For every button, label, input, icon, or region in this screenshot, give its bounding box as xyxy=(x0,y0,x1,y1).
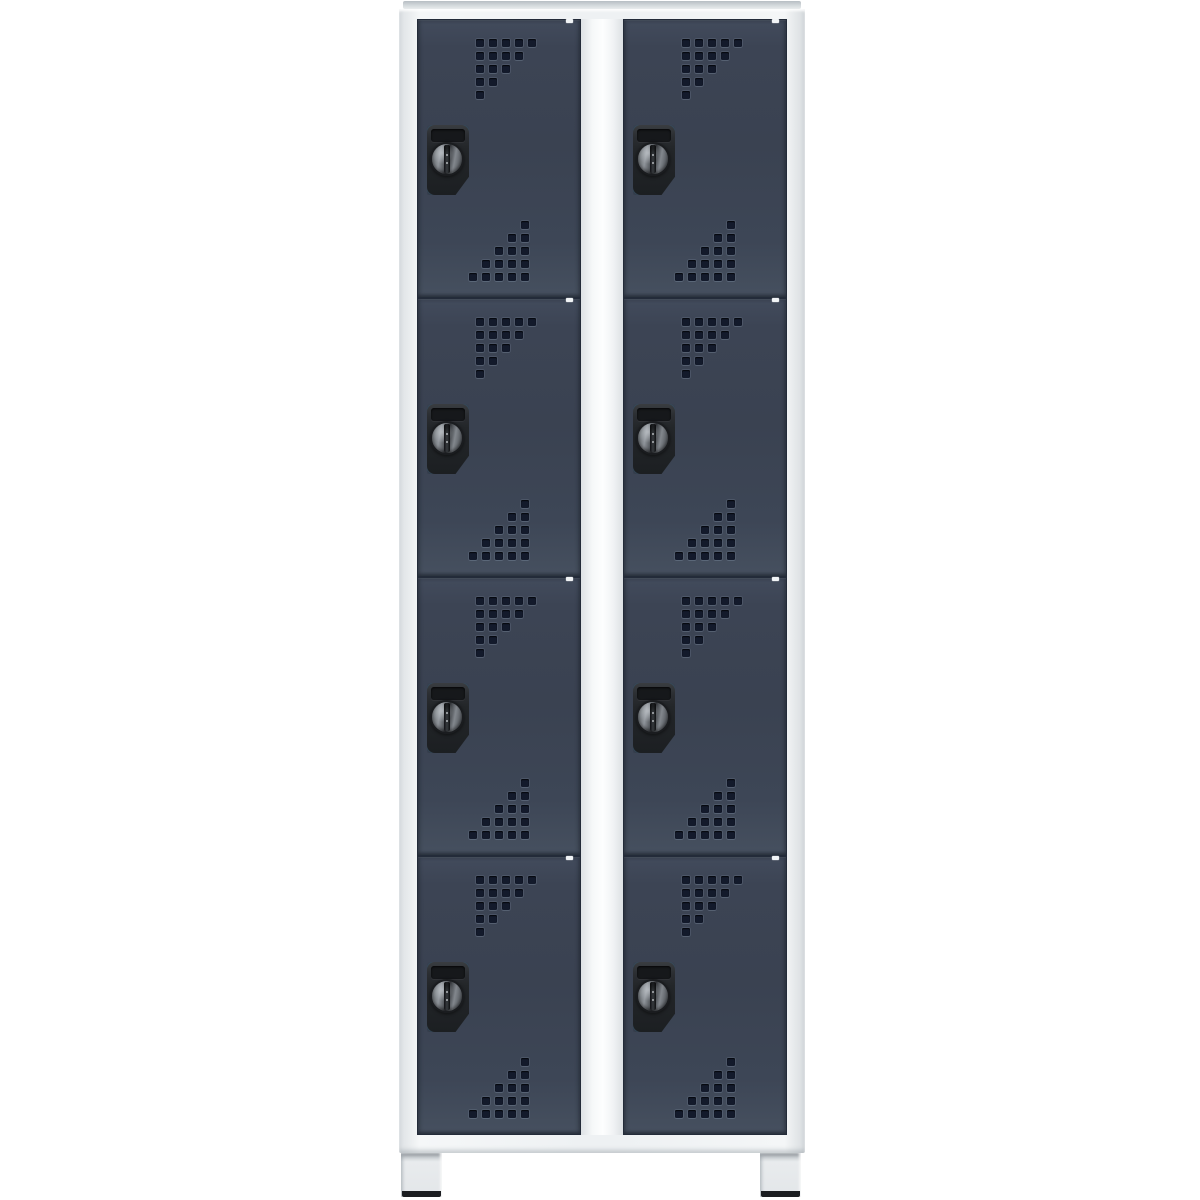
perforation-hole xyxy=(508,234,516,242)
perforation-hole xyxy=(708,39,716,47)
perforation-hole xyxy=(489,902,497,910)
perforation-hole xyxy=(688,1110,696,1118)
perforation-hole xyxy=(688,539,696,547)
ventilation-perforation-bottom xyxy=(675,221,735,281)
perforation-hole xyxy=(502,52,510,60)
perforation-hole xyxy=(502,65,510,73)
perforation-hole xyxy=(482,818,490,826)
perforation-hole xyxy=(695,52,703,60)
perforation-hole xyxy=(682,331,690,339)
perforation-hole xyxy=(508,831,516,839)
ventilation-perforation-top xyxy=(476,39,536,99)
locker-door-c2-r4 xyxy=(623,856,787,1135)
perforation-hole xyxy=(476,52,484,60)
perforation-hole xyxy=(708,597,716,605)
door-catch-highlight xyxy=(772,19,779,23)
perforation-hole xyxy=(502,318,510,326)
lock-recess xyxy=(637,966,671,979)
perforation-hole xyxy=(682,65,690,73)
cabinet-top-edge xyxy=(403,1,801,9)
perforation-hole xyxy=(476,623,484,631)
perforation-hole xyxy=(727,1058,735,1066)
perforation-hole xyxy=(714,260,722,268)
ventilation-perforation-bottom xyxy=(469,1058,529,1118)
perforation-hole xyxy=(521,1110,529,1118)
perforation-hole xyxy=(489,78,497,86)
perforation-hole xyxy=(695,357,703,365)
cabinet-foot-right xyxy=(760,1153,801,1197)
perforation-hole xyxy=(508,552,516,560)
perforation-hole xyxy=(708,610,716,618)
perforation-hole xyxy=(682,889,690,897)
knob-slot xyxy=(444,703,450,731)
perforation-hole xyxy=(489,357,497,365)
locker-lock xyxy=(633,962,675,1032)
perforation-hole xyxy=(682,915,690,923)
perforation-hole xyxy=(682,39,690,47)
perforation-hole xyxy=(476,649,484,657)
locker-door-c2-r3 xyxy=(623,577,787,856)
perforation-hole xyxy=(495,273,503,281)
perforation-hole xyxy=(708,344,716,352)
perforation-hole xyxy=(695,318,703,326)
ventilation-perforation-top xyxy=(682,876,742,936)
perforation-hole xyxy=(688,818,696,826)
perforation-hole xyxy=(495,526,503,534)
perforation-hole xyxy=(727,805,735,813)
perforation-hole xyxy=(682,344,690,352)
perforation-hole xyxy=(714,1110,722,1118)
perforation-hole xyxy=(502,597,510,605)
perforation-hole xyxy=(502,876,510,884)
locker-lock xyxy=(427,125,469,195)
perforation-hole xyxy=(695,623,703,631)
perforation-hole xyxy=(727,831,735,839)
perforation-hole xyxy=(714,539,722,547)
lock-recess xyxy=(637,687,671,700)
perforation-hole xyxy=(489,65,497,73)
perforation-hole xyxy=(682,318,690,326)
perforation-hole xyxy=(708,889,716,897)
perforation-hole xyxy=(528,876,536,884)
perforation-hole xyxy=(495,260,503,268)
perforation-hole xyxy=(682,597,690,605)
perforation-hole xyxy=(714,792,722,800)
perforation-hole xyxy=(521,539,529,547)
perforation-hole xyxy=(476,928,484,936)
locker-lock xyxy=(633,125,675,195)
perforation-hole xyxy=(714,513,722,521)
perforation-hole xyxy=(727,513,735,521)
perforation-hole xyxy=(727,221,735,229)
door-catch-highlight xyxy=(772,298,779,302)
perforation-hole xyxy=(476,39,484,47)
perforation-hole xyxy=(469,831,477,839)
perforation-hole xyxy=(714,526,722,534)
perforation-hole xyxy=(727,818,735,826)
perforation-hole xyxy=(476,78,484,86)
perforation-hole xyxy=(675,831,683,839)
center-mullion xyxy=(581,19,623,1135)
perforation-hole xyxy=(721,318,729,326)
perforation-hole xyxy=(714,1071,722,1079)
perforation-hole xyxy=(695,610,703,618)
perforation-hole xyxy=(714,818,722,826)
locker-lock xyxy=(633,683,675,753)
perforation-hole xyxy=(495,805,503,813)
locker-lock xyxy=(427,404,469,474)
perforation-hole xyxy=(489,610,497,618)
door-catch-highlight xyxy=(772,856,779,860)
ventilation-perforation-bottom xyxy=(675,779,735,839)
perforation-hole xyxy=(727,247,735,255)
perforation-hole xyxy=(695,344,703,352)
perforation-hole xyxy=(515,52,523,60)
perforation-hole xyxy=(521,500,529,508)
perforation-hole xyxy=(489,597,497,605)
perforation-hole xyxy=(721,889,729,897)
perforation-hole xyxy=(701,539,709,547)
lock-knob xyxy=(430,142,464,176)
perforation-hole xyxy=(721,876,729,884)
knob-slot xyxy=(650,703,656,731)
perforation-hole xyxy=(476,370,484,378)
perforation-hole xyxy=(727,1071,735,1079)
perforation-hole xyxy=(521,818,529,826)
lock-knob xyxy=(430,421,464,455)
perforation-hole xyxy=(521,221,529,229)
perforation-hole xyxy=(521,234,529,242)
knob-slot xyxy=(650,424,656,452)
perforation-hole xyxy=(727,234,735,242)
locker-cabinet xyxy=(399,0,805,1200)
ventilation-perforation-bottom xyxy=(469,779,529,839)
perforation-hole xyxy=(695,902,703,910)
perforation-hole xyxy=(521,792,529,800)
perforation-hole xyxy=(721,331,729,339)
perforation-hole xyxy=(682,78,690,86)
knob-slot xyxy=(650,145,656,173)
ventilation-perforation-bottom xyxy=(469,500,529,560)
perforation-hole xyxy=(502,623,510,631)
perforation-hole xyxy=(727,1097,735,1105)
perforation-hole xyxy=(701,1110,709,1118)
perforation-hole xyxy=(721,610,729,618)
locker-lock xyxy=(633,404,675,474)
perforation-hole xyxy=(734,597,742,605)
perforation-hole xyxy=(727,273,735,281)
perforation-hole xyxy=(495,1084,503,1092)
perforation-hole xyxy=(482,1097,490,1105)
perforation-hole xyxy=(476,318,484,326)
door-grid xyxy=(417,19,787,1135)
perforation-hole xyxy=(508,818,516,826)
perforation-hole xyxy=(682,357,690,365)
door-catch-highlight xyxy=(772,577,779,581)
perforation-hole xyxy=(508,1097,516,1105)
perforation-hole xyxy=(521,805,529,813)
perforation-hole xyxy=(515,610,523,618)
perforation-hole xyxy=(682,876,690,884)
perforation-hole xyxy=(682,623,690,631)
foot-tip xyxy=(402,1191,441,1197)
perforation-hole xyxy=(476,65,484,73)
perforation-hole xyxy=(508,513,516,521)
perforation-hole xyxy=(476,636,484,644)
door-column-1 xyxy=(417,19,581,1135)
lock-recess xyxy=(431,408,465,421)
perforation-hole xyxy=(495,1097,503,1105)
perforation-hole xyxy=(721,39,729,47)
perforation-hole xyxy=(489,344,497,352)
perforation-hole xyxy=(528,39,536,47)
perforation-hole xyxy=(476,91,484,99)
knob-slot xyxy=(444,982,450,1010)
perforation-hole xyxy=(727,792,735,800)
perforation-hole xyxy=(521,779,529,787)
door-catch-highlight xyxy=(566,577,573,581)
ventilation-perforation-top xyxy=(476,876,536,936)
knob-slot xyxy=(650,982,656,1010)
lock-recess xyxy=(431,966,465,979)
foot-tip xyxy=(761,1191,800,1197)
perforation-hole xyxy=(521,1097,529,1105)
perforation-hole xyxy=(521,1071,529,1079)
perforation-hole xyxy=(476,597,484,605)
locker-lock xyxy=(427,962,469,1032)
cabinet-foot-left xyxy=(401,1153,442,1197)
perforation-hole xyxy=(688,273,696,281)
perforation-hole xyxy=(708,623,716,631)
ventilation-perforation-top xyxy=(476,597,536,657)
perforation-hole xyxy=(469,1110,477,1118)
ventilation-perforation-bottom xyxy=(675,500,735,560)
perforation-hole xyxy=(489,876,497,884)
perforation-hole xyxy=(489,331,497,339)
ventilation-perforation-bottom xyxy=(469,221,529,281)
perforation-hole xyxy=(521,273,529,281)
lock-knob xyxy=(636,421,670,455)
perforation-hole xyxy=(482,552,490,560)
perforation-hole xyxy=(734,318,742,326)
perforation-hole xyxy=(521,526,529,534)
perforation-hole xyxy=(701,1084,709,1092)
perforation-hole xyxy=(489,889,497,897)
perforation-hole xyxy=(489,52,497,60)
perforation-hole xyxy=(714,234,722,242)
perforation-hole xyxy=(515,331,523,339)
perforation-hole xyxy=(469,273,477,281)
locker-lock xyxy=(427,683,469,753)
locker-door-c1-r1 xyxy=(417,19,581,298)
perforation-hole xyxy=(482,1110,490,1118)
perforation-hole xyxy=(682,928,690,936)
perforation-hole xyxy=(727,260,735,268)
perforation-hole xyxy=(521,1058,529,1066)
perforation-hole xyxy=(521,552,529,560)
knob-slot xyxy=(444,145,450,173)
perforation-hole xyxy=(708,331,716,339)
perforation-hole xyxy=(701,805,709,813)
perforation-hole xyxy=(476,876,484,884)
perforation-hole xyxy=(476,331,484,339)
perforation-hole xyxy=(489,39,497,47)
perforation-hole xyxy=(495,831,503,839)
perforation-hole xyxy=(528,597,536,605)
perforation-hole xyxy=(476,357,484,365)
perforation-hole xyxy=(482,273,490,281)
perforation-hole xyxy=(727,539,735,547)
lock-knob xyxy=(430,700,464,734)
perforation-hole xyxy=(502,889,510,897)
perforation-hole xyxy=(682,370,690,378)
perforation-hole xyxy=(701,526,709,534)
perforation-hole xyxy=(476,902,484,910)
perforation-hole xyxy=(721,597,729,605)
perforation-hole xyxy=(727,552,735,560)
perforation-hole xyxy=(675,1110,683,1118)
perforation-hole xyxy=(682,649,690,657)
perforation-hole xyxy=(688,831,696,839)
perforation-hole xyxy=(521,1084,529,1092)
ventilation-perforation-top xyxy=(682,39,742,99)
cabinet-frame xyxy=(399,9,805,1153)
perforation-hole xyxy=(714,1097,722,1105)
ventilation-perforation-top xyxy=(682,318,742,378)
perforation-hole xyxy=(721,52,729,60)
perforation-hole xyxy=(521,831,529,839)
lock-recess xyxy=(637,129,671,142)
perforation-hole xyxy=(521,260,529,268)
perforation-hole xyxy=(489,318,497,326)
ventilation-perforation-top xyxy=(476,318,536,378)
perforation-hole xyxy=(682,610,690,618)
perforation-hole xyxy=(695,636,703,644)
perforation-hole xyxy=(695,889,703,897)
perforation-hole xyxy=(508,273,516,281)
perforation-hole xyxy=(495,818,503,826)
perforation-hole xyxy=(515,597,523,605)
perforation-hole xyxy=(708,318,716,326)
perforation-hole xyxy=(502,610,510,618)
perforation-hole xyxy=(682,902,690,910)
perforation-hole xyxy=(714,552,722,560)
locker-door-c1-r2 xyxy=(417,298,581,577)
perforation-hole xyxy=(515,318,523,326)
perforation-hole xyxy=(734,39,742,47)
perforation-hole xyxy=(708,902,716,910)
locker-door-c1-r3 xyxy=(417,577,581,856)
perforation-hole xyxy=(495,539,503,547)
perforation-hole xyxy=(476,344,484,352)
perforation-hole xyxy=(708,65,716,73)
perforation-hole xyxy=(482,539,490,547)
perforation-hole xyxy=(701,273,709,281)
perforation-hole xyxy=(521,513,529,521)
perforation-hole xyxy=(521,247,529,255)
lock-recess xyxy=(431,687,465,700)
perforation-hole xyxy=(714,805,722,813)
perforation-hole xyxy=(495,552,503,560)
door-catch-highlight xyxy=(566,19,573,23)
perforation-hole xyxy=(489,623,497,631)
perforation-hole xyxy=(508,247,516,255)
perforation-hole xyxy=(508,260,516,268)
perforation-hole xyxy=(708,52,716,60)
locker-door-c1-r4 xyxy=(417,856,581,1135)
perforation-hole xyxy=(508,792,516,800)
product-photo xyxy=(0,0,1200,1200)
perforation-hole xyxy=(714,247,722,255)
perforation-hole xyxy=(727,779,735,787)
perforation-hole xyxy=(708,876,716,884)
perforation-hole xyxy=(682,91,690,99)
perforation-hole xyxy=(508,805,516,813)
perforation-hole xyxy=(502,344,510,352)
perforation-hole xyxy=(727,500,735,508)
perforation-hole xyxy=(502,39,510,47)
perforation-hole xyxy=(489,915,497,923)
perforation-hole xyxy=(502,902,510,910)
perforation-hole xyxy=(515,876,523,884)
perforation-hole xyxy=(495,1110,503,1118)
perforation-hole xyxy=(495,247,503,255)
door-catch-highlight xyxy=(566,856,573,860)
perforation-hole xyxy=(695,331,703,339)
perforation-hole xyxy=(508,539,516,547)
locker-door-c2-r1 xyxy=(623,19,787,298)
perforation-hole xyxy=(502,331,510,339)
perforation-hole xyxy=(682,636,690,644)
door-column-2 xyxy=(623,19,787,1135)
perforation-hole xyxy=(476,610,484,618)
perforation-hole xyxy=(727,1110,735,1118)
perforation-hole xyxy=(695,65,703,73)
perforation-hole xyxy=(701,260,709,268)
perforation-hole xyxy=(695,915,703,923)
perforation-hole xyxy=(695,39,703,47)
perforation-hole xyxy=(701,247,709,255)
perforation-hole xyxy=(482,260,490,268)
perforation-hole xyxy=(469,552,477,560)
locker-door-c2-r2 xyxy=(623,298,787,577)
lock-recess xyxy=(637,408,671,421)
perforation-hole xyxy=(701,818,709,826)
perforation-hole xyxy=(714,1084,722,1092)
perforation-hole xyxy=(528,318,536,326)
perforation-hole xyxy=(489,636,497,644)
perforation-hole xyxy=(688,260,696,268)
perforation-hole xyxy=(508,1084,516,1092)
lock-knob xyxy=(430,979,464,1013)
perforation-hole xyxy=(695,597,703,605)
perforation-hole xyxy=(508,526,516,534)
perforation-hole xyxy=(695,876,703,884)
ventilation-perforation-bottom xyxy=(675,1058,735,1118)
lock-knob xyxy=(636,700,670,734)
perforation-hole xyxy=(515,889,523,897)
knob-slot xyxy=(444,424,450,452)
perforation-hole xyxy=(482,831,490,839)
ventilation-perforation-top xyxy=(682,597,742,657)
perforation-hole xyxy=(508,1110,516,1118)
perforation-hole xyxy=(701,552,709,560)
perforation-hole xyxy=(476,915,484,923)
perforation-hole xyxy=(727,526,735,534)
perforation-hole xyxy=(714,831,722,839)
perforation-hole xyxy=(727,1084,735,1092)
door-catch-highlight xyxy=(566,298,573,302)
